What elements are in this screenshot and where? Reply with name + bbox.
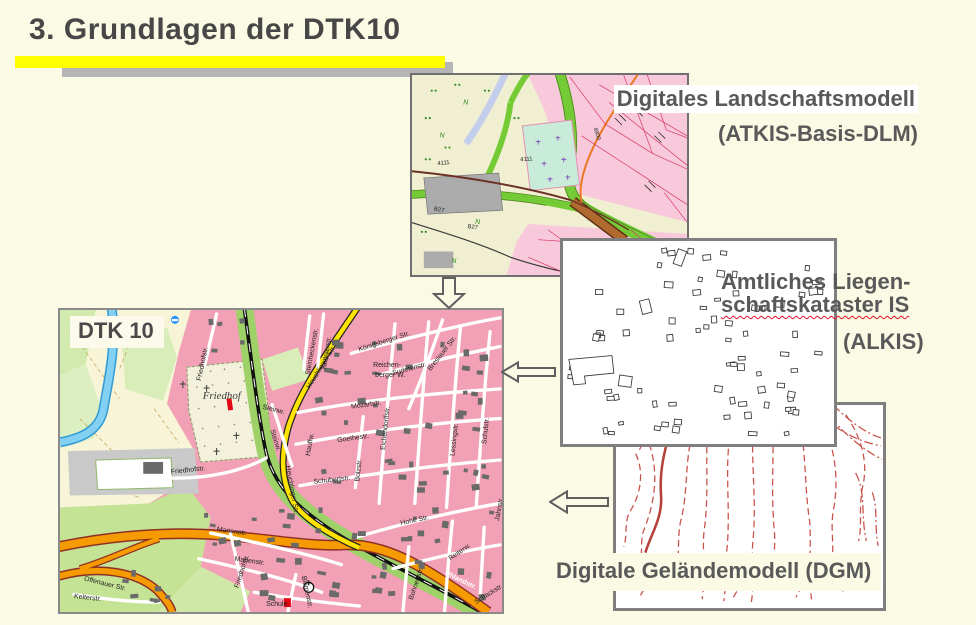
building [276, 558, 285, 563]
block-arrow-left-icon [549, 490, 609, 514]
building [614, 394, 620, 400]
building [674, 419, 682, 425]
building [652, 401, 657, 408]
building [379, 571, 386, 579]
building [462, 365, 470, 371]
building [738, 356, 745, 360]
building [471, 484, 480, 491]
building [443, 470, 449, 475]
building [456, 413, 464, 419]
building [693, 289, 701, 295]
building [720, 251, 727, 256]
building [472, 427, 480, 432]
building [397, 344, 403, 351]
meadow-symbol: N [463, 99, 468, 106]
building [155, 586, 162, 591]
dlm-label-line1: Digitales Landschaftsmodell [614, 85, 918, 113]
building [595, 290, 602, 295]
building [758, 386, 766, 393]
building [344, 420, 349, 425]
building [730, 397, 736, 404]
building [667, 250, 675, 256]
building [815, 351, 823, 355]
building [403, 428, 410, 434]
dtk10-map-graphic: Friedhofstr. Friedhofstr. Friedhofstr. F… [60, 310, 502, 612]
building [688, 248, 694, 254]
slide: 3. Grundlagen der DTK10 [0, 0, 976, 625]
dgm-label: Digitale Geländemodell (DGM) [546, 553, 881, 591]
meadow-symbol: N [451, 258, 456, 265]
building [724, 415, 730, 420]
building [463, 349, 469, 356]
building [252, 518, 257, 521]
building [714, 385, 722, 392]
building [662, 248, 668, 253]
atkis-cemetery-area [522, 120, 579, 191]
building [375, 587, 383, 594]
building [408, 536, 413, 541]
building [332, 339, 341, 345]
dtk10-badge: DTK 10 [70, 316, 164, 348]
building [318, 507, 322, 513]
building [667, 334, 674, 341]
block-arrow-down-icon [431, 277, 467, 310]
building [725, 320, 732, 326]
building [358, 531, 366, 536]
building [419, 481, 427, 486]
building [463, 391, 468, 395]
building [791, 369, 798, 373]
building [463, 468, 468, 472]
building [388, 591, 395, 596]
building [239, 318, 245, 324]
building [418, 530, 425, 536]
building [208, 319, 213, 325]
building [351, 533, 357, 540]
cemetery-label: Friedhof [202, 390, 243, 402]
building [399, 474, 407, 479]
building [748, 431, 757, 435]
building [260, 590, 269, 596]
dlm-label: Digitales Landschaftsmodell (ATKIS-Basis… [614, 85, 918, 147]
building [130, 594, 138, 599]
building [279, 509, 285, 513]
building [784, 431, 789, 435]
building [654, 426, 661, 431]
building [793, 410, 799, 416]
building [432, 507, 439, 514]
building [756, 372, 761, 377]
building [738, 401, 746, 406]
signpost-icon-bar [172, 319, 178, 321]
building [143, 462, 163, 474]
building [664, 282, 673, 289]
building [669, 402, 677, 406]
building [344, 371, 351, 375]
building [604, 389, 612, 394]
building [479, 354, 488, 361]
building [698, 277, 703, 282]
building [669, 318, 675, 324]
building [295, 558, 302, 565]
building [409, 461, 413, 467]
building [657, 262, 662, 268]
meadow-symbol: N [440, 133, 445, 140]
building [608, 431, 614, 434]
building [260, 573, 268, 581]
alkis-label-line3: (ALKIS) [843, 329, 924, 355]
building [489, 511, 494, 515]
dlm-label-line2: (ATKIS-Basis-DLM) [614, 121, 918, 147]
building [131, 570, 136, 577]
building [477, 370, 483, 375]
building [334, 352, 340, 357]
building [711, 316, 717, 323]
alkis-label-line2: schaftskataster IS [721, 293, 910, 316]
building [696, 328, 701, 332]
building [372, 575, 377, 578]
alkis-label: Amtliches Liegen- schaftskataster IS [721, 270, 910, 316]
building [743, 331, 748, 336]
title-highlight-bar [15, 56, 445, 68]
page-title: 3. Grundlagen der DTK10 [29, 13, 401, 47]
building [458, 568, 465, 575]
building [618, 421, 623, 425]
dtk10-map: Friedhofstr. Friedhofstr. Friedhofstr. F… [58, 308, 504, 614]
block-arrow-left-icon [501, 361, 556, 383]
building [737, 364, 744, 371]
building [700, 306, 707, 309]
building [764, 402, 769, 408]
building [291, 543, 299, 548]
street-label: Schule [266, 601, 287, 608]
building [704, 325, 709, 329]
building [593, 334, 600, 342]
building [726, 338, 732, 342]
building [204, 513, 208, 518]
building [321, 411, 326, 416]
atkis-gray-area-2 [424, 251, 454, 268]
building [240, 340, 245, 345]
building [787, 391, 795, 398]
building [744, 412, 751, 419]
building [638, 388, 642, 393]
building [283, 524, 291, 529]
building [785, 407, 791, 411]
building [321, 469, 327, 475]
building [793, 331, 798, 337]
building [211, 348, 217, 352]
building [672, 426, 680, 433]
building [478, 398, 483, 405]
building [417, 487, 425, 493]
building [715, 298, 721, 301]
road-number: 4111 [437, 160, 450, 167]
building [623, 330, 630, 336]
building [234, 540, 242, 547]
road-number: 4111 [520, 156, 533, 163]
building [315, 528, 321, 534]
building [165, 595, 170, 599]
building [617, 309, 624, 314]
building [730, 363, 737, 367]
alkis-label-line1: Amtliches Liegen- [721, 270, 910, 293]
building [331, 592, 339, 598]
building [442, 521, 449, 529]
building [212, 542, 217, 546]
building [703, 255, 711, 261]
building [603, 427, 608, 434]
building [481, 464, 486, 469]
building [780, 352, 789, 357]
building [662, 422, 669, 427]
building [777, 383, 785, 388]
